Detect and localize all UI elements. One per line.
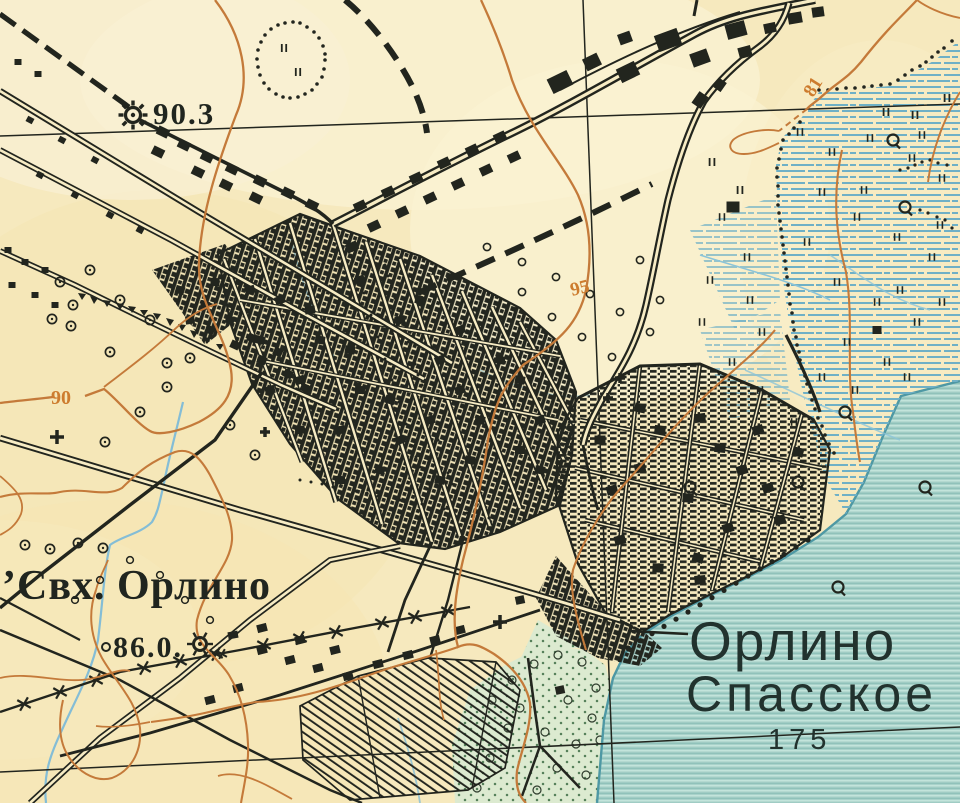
svg-text:’Свх. Орлино: ’Свх. Орлино [2, 563, 271, 609]
svg-text:86.0.: 86.0. [113, 631, 183, 664]
svg-text:175: 175 [768, 724, 831, 756]
svg-text:Спасское: Спасское [686, 666, 937, 722]
svg-text:Орлино: Орлино [689, 610, 896, 672]
svg-text:90: 90 [51, 387, 71, 409]
svg-text:90.3: 90.3 [153, 96, 215, 131]
